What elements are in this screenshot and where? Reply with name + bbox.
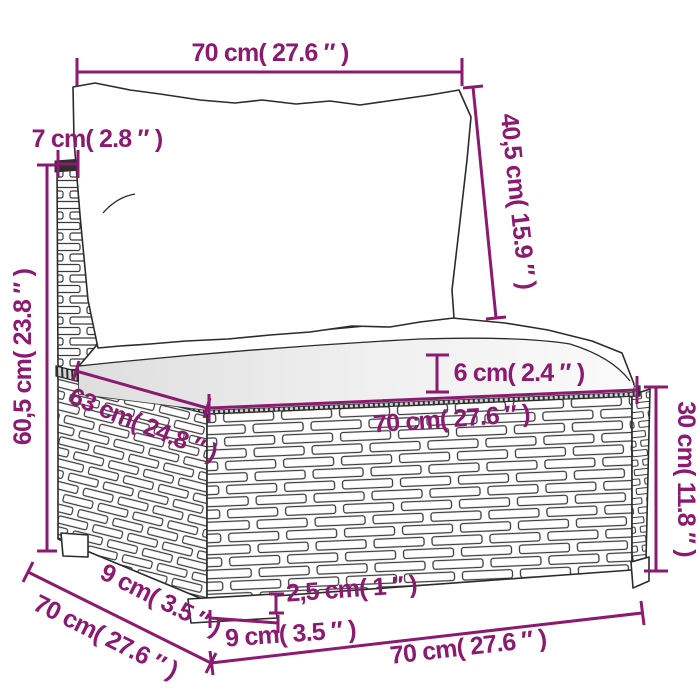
dim-back-height-label: 60,5 cm( 23.8 ″ ) [9, 268, 37, 445]
dim-total-width-label: 70 cm( 27.6 ″ ) [389, 624, 549, 670]
dim-pillow-height: 40,5 cm( 15.9 ″ ) [463, 86, 541, 319]
dimension-diagram: 70 cm( 27.6 ″ ) 7 cm( 2.8 ″ ) 40,5 cm( 1… [0, 0, 700, 700]
dim-base-height: 30 cm( 11.8 ″ ) [644, 387, 700, 571]
dim-back-height: 60,5 cm( 23.8 ″ ) [9, 165, 57, 551]
dim-back-thickness-label: 7 cm( 2.8 ″ ) [32, 125, 163, 153]
dim-pillow-width-label: 70 cm( 27.6 ″ ) [191, 39, 348, 67]
back-cushion-body [73, 83, 471, 348]
dim-cushion-thickness-label: 6 cm( 2.4 ″ ) [454, 359, 585, 387]
diagram-canvas: 70 cm( 27.6 ″ ) 7 cm( 2.8 ″ ) 40,5 cm( 1… [0, 0, 700, 700]
dim-pillow-height-label: 40,5 cm( 15.9 ″ ) [495, 112, 541, 291]
back-cushion [73, 83, 471, 348]
dim-pillow-width: 70 cm( 27.6 ″ ) [77, 39, 462, 86]
base-right-face [632, 389, 650, 570]
dim-base-height-label: 30 cm( 11.8 ″ ) [672, 401, 700, 557]
sofa-line-art [55, 83, 650, 623]
foot-left [61, 533, 88, 557]
